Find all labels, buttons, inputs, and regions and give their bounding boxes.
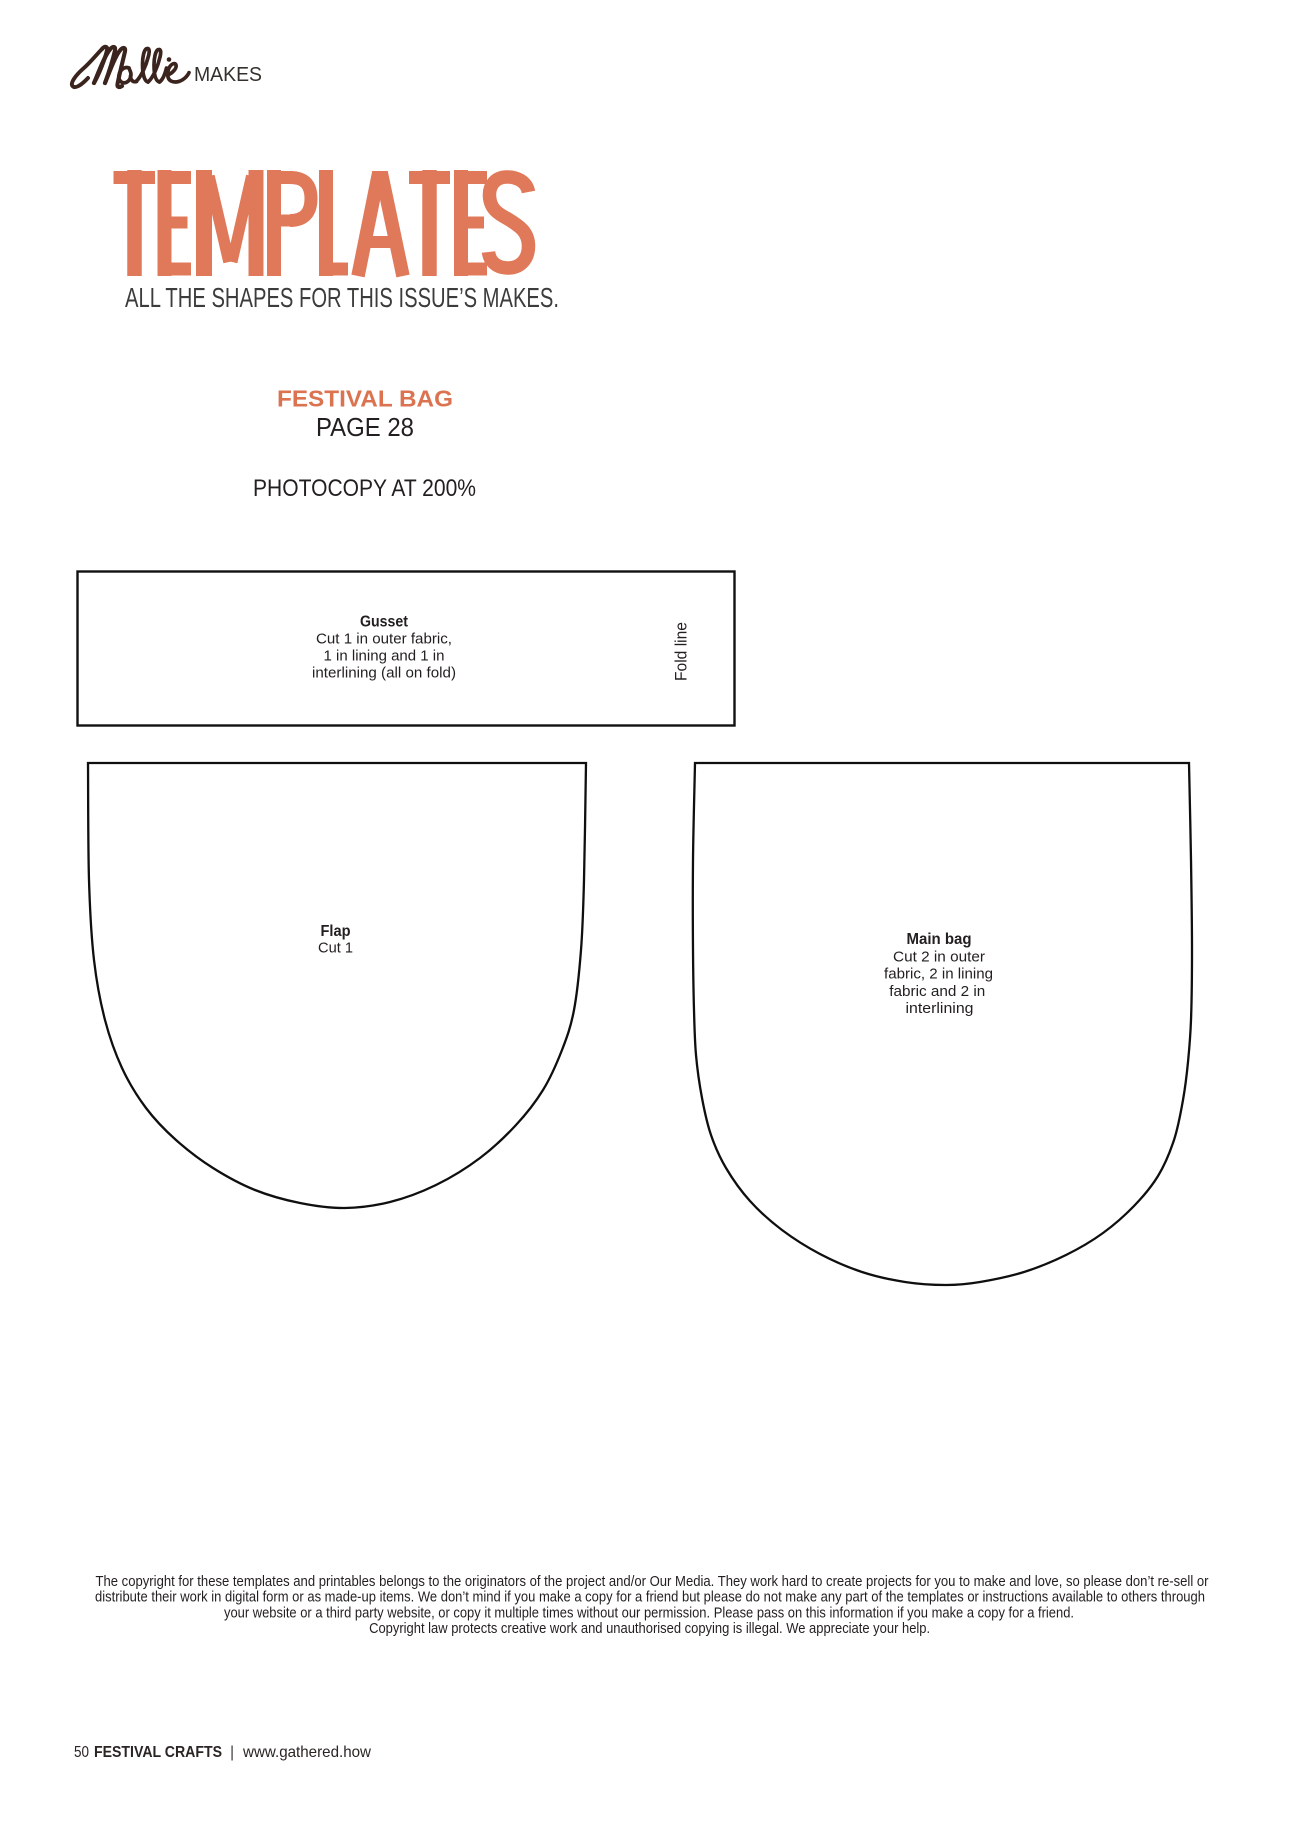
svg-text:50: 50 — [74, 1744, 89, 1761]
svg-text:Main bag: Main bag — [907, 931, 972, 948]
svg-text:Gusset: Gusset — [360, 613, 409, 630]
svg-text:|: | — [230, 1744, 234, 1761]
svg-text:ALL THE SHAPES FOR THIS ISSUE’: ALL THE SHAPES FOR THIS ISSUE’S MAKES. — [125, 282, 559, 313]
svg-text:Cut 1 in outer fabric,: Cut 1 in outer fabric, — [316, 630, 452, 647]
svg-text:Fold line: Fold line — [673, 622, 691, 681]
svg-text:PAGE 28: PAGE 28 — [316, 414, 414, 442]
svg-text:PHOTOCOPY AT 200%: PHOTOCOPY AT 200% — [253, 475, 476, 502]
svg-text:The copyright for these templa: The copyright for these templates and pr… — [96, 1573, 1209, 1590]
svg-text:1 in lining and 1 in: 1 in lining and 1 in — [324, 648, 445, 665]
svg-text:MAKES: MAKES — [194, 64, 262, 86]
svg-text:fabric and 2 in: fabric and 2 in — [889, 983, 985, 1000]
svg-text:fabric, 2 in lining: fabric, 2 in lining — [884, 966, 993, 983]
svg-text:Flap: Flap — [321, 923, 351, 940]
svg-text:Cut 2 in outer: Cut 2 in outer — [893, 948, 985, 965]
svg-text:interlining (all on fold): interlining (all on fold) — [312, 665, 456, 682]
svg-text:distribute their work in digit: distribute their work in digital form or… — [95, 1589, 1205, 1606]
svg-text:www.gathered.how: www.gathered.how — [242, 1744, 371, 1761]
svg-text:Copyright law protects creativ: Copyright law protects creative work and… — [369, 1620, 930, 1637]
svg-text:FESTIVAL CRAFTS: FESTIVAL CRAFTS — [94, 1744, 222, 1761]
svg-text:Cut 1: Cut 1 — [318, 940, 353, 957]
svg-text:interlining: interlining — [906, 1000, 974, 1017]
svg-text:FESTIVAL BAG: FESTIVAL BAG — [277, 386, 453, 412]
svg-text:your website or a third party: your website or a third party website, o… — [224, 1604, 1074, 1621]
